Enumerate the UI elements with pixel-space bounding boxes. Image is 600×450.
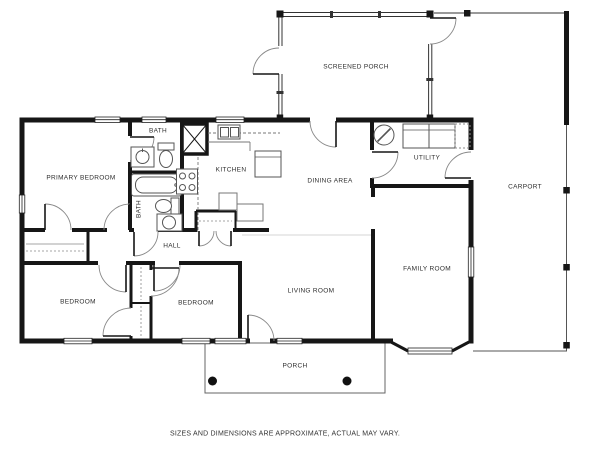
room-label-porch: PORCH	[283, 363, 308, 370]
window	[95, 117, 120, 123]
room-label-family-room: FAMILY ROOM	[403, 266, 451, 273]
kitchen-island	[219, 193, 263, 221]
room-label-utility: UTILITY	[414, 155, 440, 162]
toilet-icon	[158, 143, 174, 168]
room-label-hall: HALL	[163, 243, 180, 250]
floor-plan-drawing	[0, 0, 600, 450]
window	[142, 117, 166, 123]
floor-plan-page: SCREENED PORCH PRIMARY BEDROOM BATH BATH…	[0, 0, 600, 450]
dryer-icon	[429, 124, 455, 148]
furnace-icon	[182, 124, 207, 154]
window	[216, 117, 244, 123]
bay-window	[408, 348, 452, 354]
room-label-living-room: LIVING ROOM	[288, 288, 335, 295]
room-label-kitchen: KITCHEN	[216, 167, 247, 174]
porch-column	[208, 377, 217, 386]
room-label-bath-lower: BATH	[136, 200, 143, 218]
window	[277, 338, 302, 344]
window	[215, 338, 246, 344]
room-label-primary-bedroom: PRIMARY BEDROOM	[46, 175, 115, 182]
stove-icon	[177, 169, 198, 194]
washer-icon	[403, 124, 429, 148]
porch-column	[343, 377, 352, 386]
room-label-bedroom-right: BEDROOM	[178, 300, 214, 307]
window	[64, 338, 92, 344]
kitchen-sink-icon	[218, 125, 240, 139]
window	[182, 338, 210, 344]
room-label-bedroom-left: BEDROOM	[60, 299, 96, 306]
carport-outline	[434, 10, 570, 351]
window	[19, 195, 25, 213]
interior-walls	[22, 118, 473, 342]
room-label-bath-top: BATH	[149, 128, 167, 135]
disclaimer-text: SIZES AND DIMENSIONS ARE APPROXIMATE, AC…	[170, 431, 400, 438]
room-label-carport: CARPORT	[508, 184, 542, 191]
bathtub-icon	[132, 174, 182, 196]
bathroom-sink-icon	[131, 147, 154, 167]
water-heater-icon	[374, 125, 394, 145]
bathroom-sink-icon	[157, 214, 182, 231]
refrigerator-icon	[255, 151, 281, 177]
room-label-screened-porch: SCREENED PORCH	[323, 64, 389, 71]
toilet-icon	[156, 198, 180, 214]
window	[468, 247, 474, 277]
room-label-dining-area: DINING AREA	[307, 178, 352, 185]
utility-counter	[455, 124, 470, 148]
